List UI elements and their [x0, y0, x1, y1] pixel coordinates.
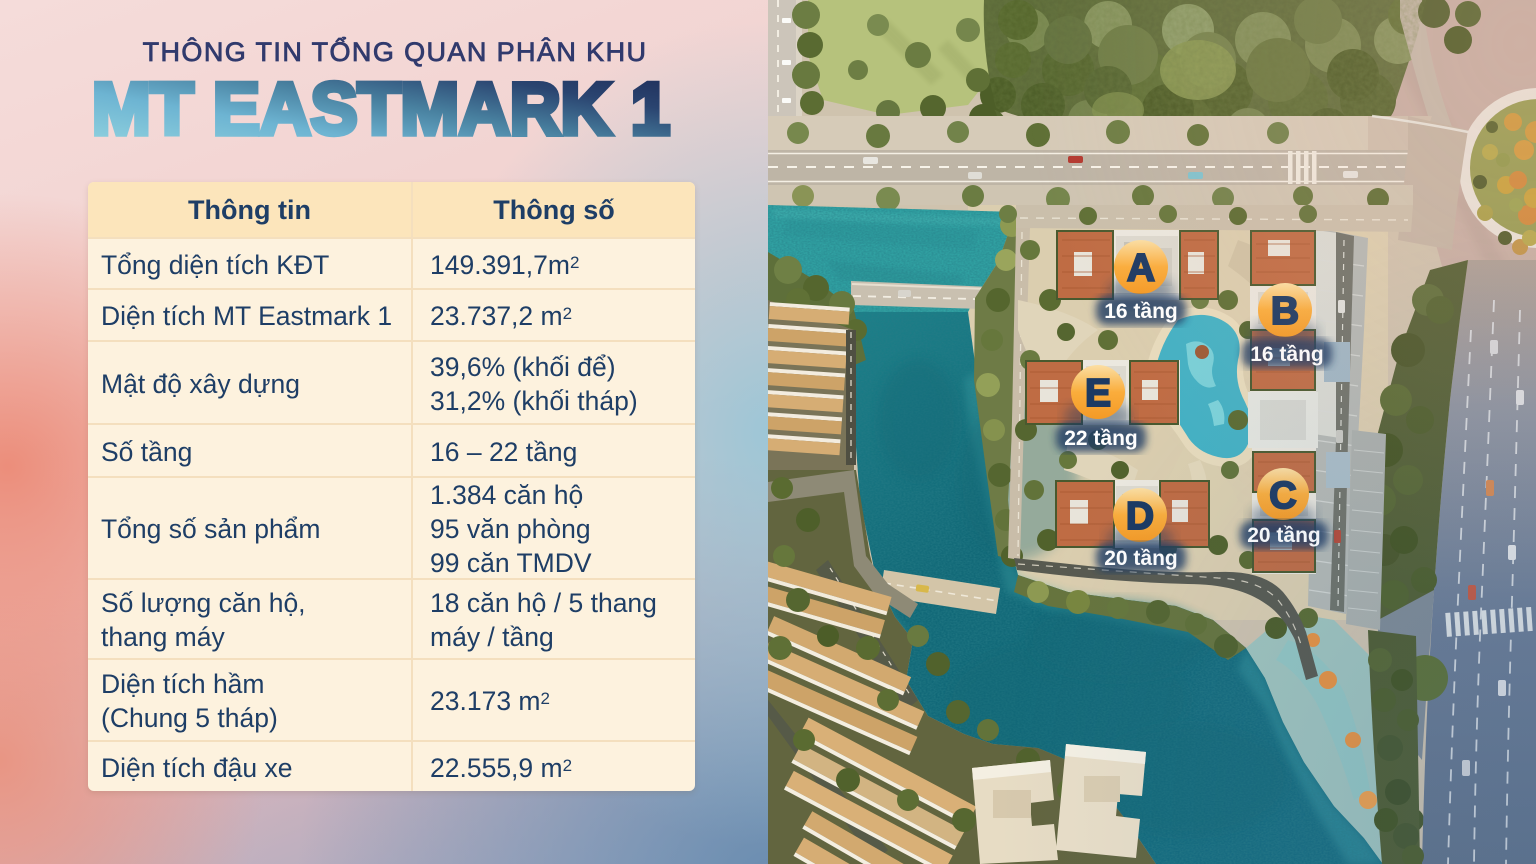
- svg-text:MT EASTMARK 1: MT EASTMARK 1: [92, 69, 670, 150]
